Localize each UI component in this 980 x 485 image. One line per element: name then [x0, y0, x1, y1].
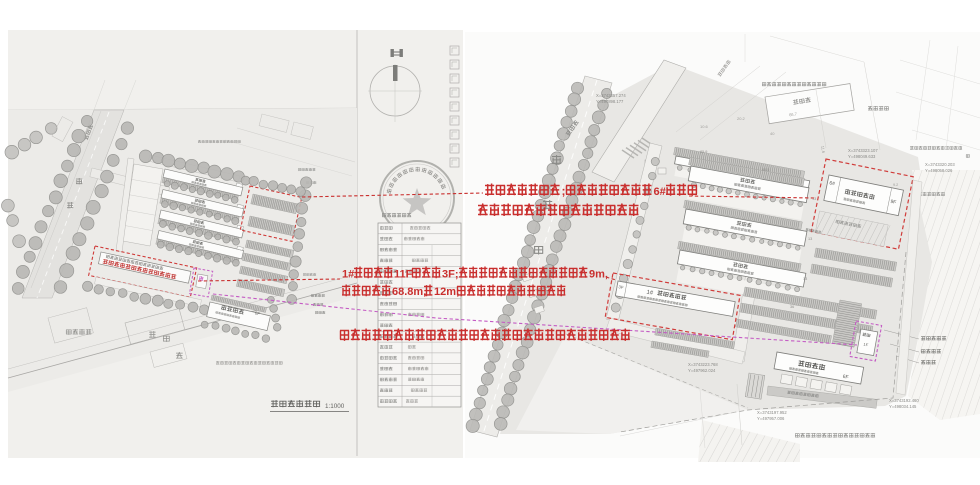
svg-text:Y=498049.633: Y=498049.633 [848, 154, 876, 159]
svg-text:X=3743320.203: X=3743320.203 [925, 162, 955, 167]
svg-text:13: 13 [808, 237, 812, 241]
svg-text:85.9: 85.9 [700, 150, 707, 154]
svg-text:6#: 6# [654, 186, 666, 198]
svg-text:X=3743357.274: X=3743357.274 [596, 93, 626, 98]
svg-text:20.2: 20.2 [737, 116, 746, 121]
svg-text:Y=498058.026: Y=498058.026 [925, 168, 953, 173]
svg-text:X=3743323.107: X=3743323.107 [848, 148, 878, 153]
svg-text:X=3743192.460: X=3743192.460 [889, 398, 919, 403]
svg-text:6F: 6F [842, 374, 849, 381]
svg-text:10.6: 10.6 [700, 124, 709, 129]
svg-text:36: 36 [790, 305, 794, 309]
svg-text:9.2: 9.2 [893, 183, 898, 187]
svg-text:40: 40 [770, 131, 775, 136]
svg-text:9m,: 9m, [589, 269, 608, 281]
svg-text:Y=497898.177: Y=497898.177 [596, 99, 624, 104]
svg-text:Y=498034.145: Y=498034.145 [889, 404, 917, 409]
svg-text:Y=497962.024: Y=497962.024 [688, 368, 716, 373]
svg-text:11F: 11F [394, 269, 413, 281]
svg-text:1#: 1# [342, 269, 354, 281]
svg-text:13: 13 [803, 277, 807, 281]
svg-text:85.5: 85.5 [762, 168, 769, 172]
svg-text:;: ; [562, 184, 566, 198]
svg-text:X=3743197.952: X=3743197.952 [757, 410, 787, 415]
svg-text:68.8m,: 68.8m, [392, 286, 426, 298]
svg-text:X=3743223.768: X=3743223.768 [688, 362, 718, 367]
svg-text:12m;: 12m; [434, 286, 460, 298]
svg-text:9F: 9F [890, 199, 897, 206]
svg-text:3F;: 3F; [442, 269, 459, 281]
svg-text:Y=497957.006: Y=497957.006 [757, 416, 785, 421]
svg-text:1:1000: 1:1000 [325, 403, 345, 410]
